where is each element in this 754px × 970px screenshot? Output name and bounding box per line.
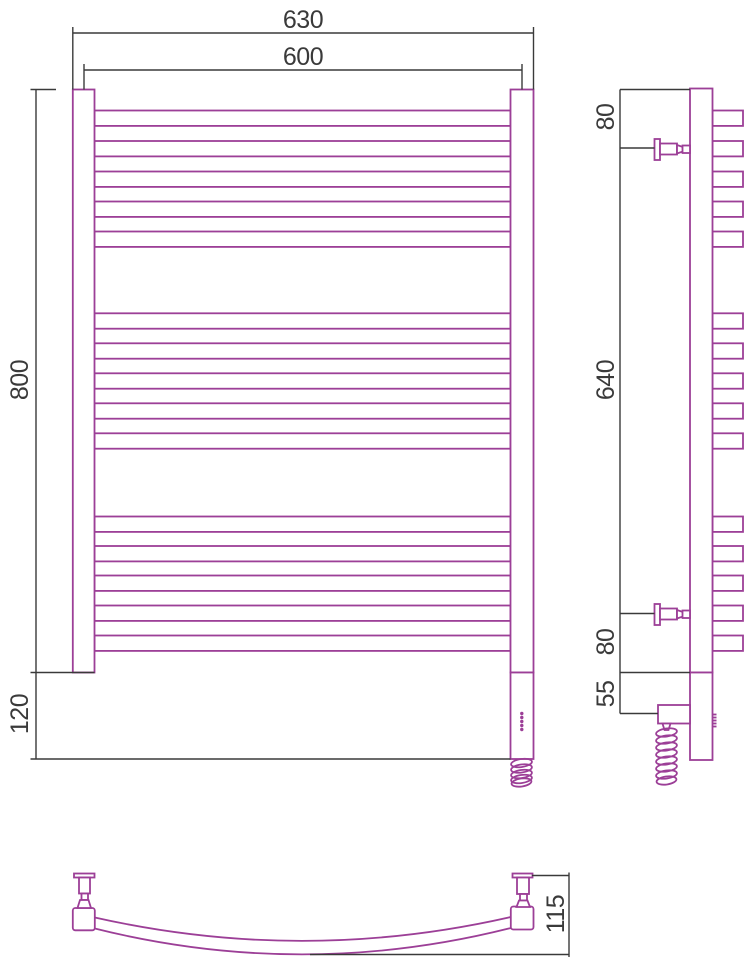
drawing-canvas: 630 600 800 120: [0, 0, 754, 970]
front-rungs: [95, 111, 511, 651]
dim-630-label: 630: [283, 6, 323, 34]
front-indicator-dots: [520, 712, 523, 731]
front-heater-housing: [511, 673, 534, 760]
dim-640-label: 640: [592, 360, 620, 400]
side-rung-stubs: [713, 111, 744, 651]
dim-55-label: 55: [592, 681, 620, 708]
dim-80-top-label: 80: [592, 104, 620, 131]
side-power-cable-coil: [656, 727, 678, 786]
side-heater-housing: [690, 673, 713, 761]
side-wall-bracket-bottom: [655, 604, 691, 625]
front-view: 630 600 800 120: [6, 6, 534, 788]
top-right-collector-block: [511, 907, 534, 930]
top-wall-bracket-right: [513, 874, 533, 908]
top-left-collector-block: [73, 908, 95, 930]
top-curved-rung: [95, 917, 511, 954]
front-right-collector: [511, 90, 534, 673]
side-view: 80 640 80 55: [592, 89, 743, 786]
dim-600-label: 600: [283, 43, 323, 71]
top-wall-bracket-left: [74, 874, 95, 909]
dim-115-label: 115: [542, 895, 570, 933]
side-heater-box: [658, 705, 690, 724]
side-cable-gland-marks: [713, 715, 717, 727]
dim-800-label: 800: [6, 360, 34, 400]
dim-80-bottom-label: 80: [592, 629, 620, 656]
front-power-cable-coil: [511, 758, 533, 788]
side-collector-tube: [690, 89, 713, 673]
dim-120-label: 120: [6, 694, 34, 734]
technical-drawing: 630 600 800 120: [0, 0, 754, 970]
top-view: 115: [73, 873, 570, 958]
front-left-collector: [73, 90, 95, 673]
side-wall-bracket-top: [655, 139, 691, 160]
